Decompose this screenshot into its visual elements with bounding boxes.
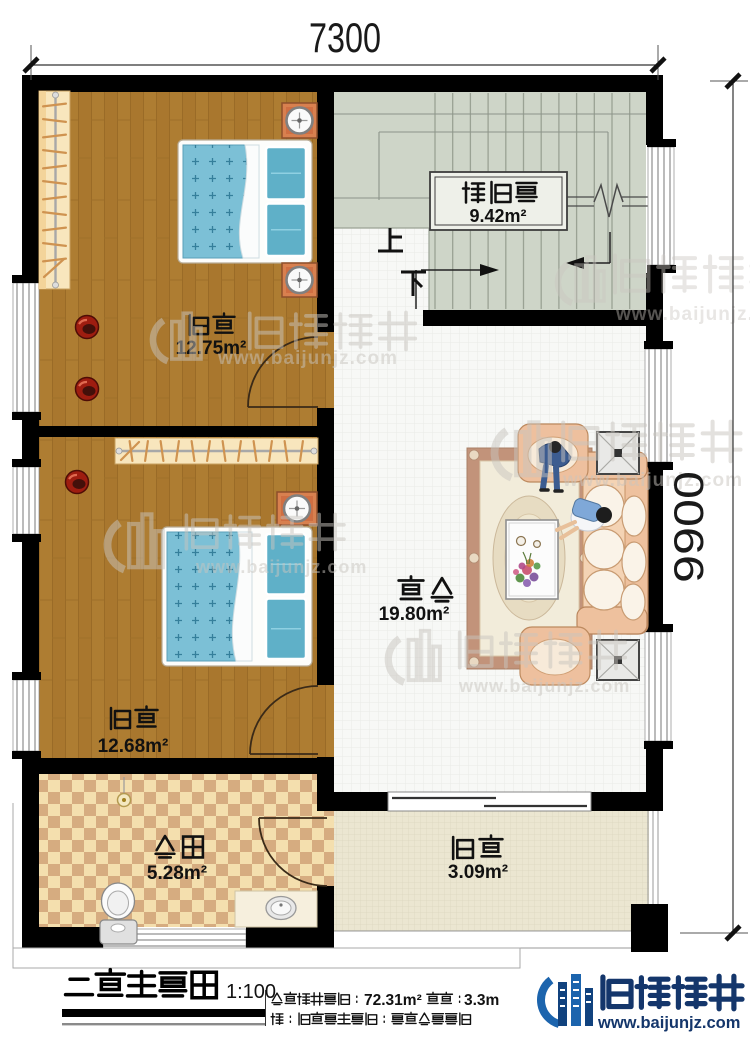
svg-text:3.09m²: 3.09m² [448,862,508,883]
svg-text:19.80m²: 19.80m² [379,604,450,625]
svg-text:7300: 7300 [309,14,381,61]
svg-text:www.baijunjz.com: www.baijunjz.com [217,348,398,369]
svg-text:9.42m²: 9.42m² [469,206,526,226]
svg-text:3.3m: 3.3m [464,992,499,1009]
svg-text:www.baijunjz.com: www.baijunjz.com [195,557,367,577]
svg-text:www.baijunjz.com: www.baijunjz.com [615,304,750,325]
svg-text:www.baijunjz.com: www.baijunjz.com [597,1014,740,1032]
svg-text:9900: 9900 [665,471,712,583]
svg-text:72.31m²: 72.31m² [364,992,422,1009]
svg-text:1:100: 1:100 [226,981,276,1003]
svg-text:5.28m²: 5.28m² [147,863,207,884]
svg-text:12.68m²: 12.68m² [98,736,169,757]
svg-text:www.baijunjz.com: www.baijunjz.com [562,470,743,491]
svg-text:www.baijunjz.com: www.baijunjz.com [458,676,630,696]
